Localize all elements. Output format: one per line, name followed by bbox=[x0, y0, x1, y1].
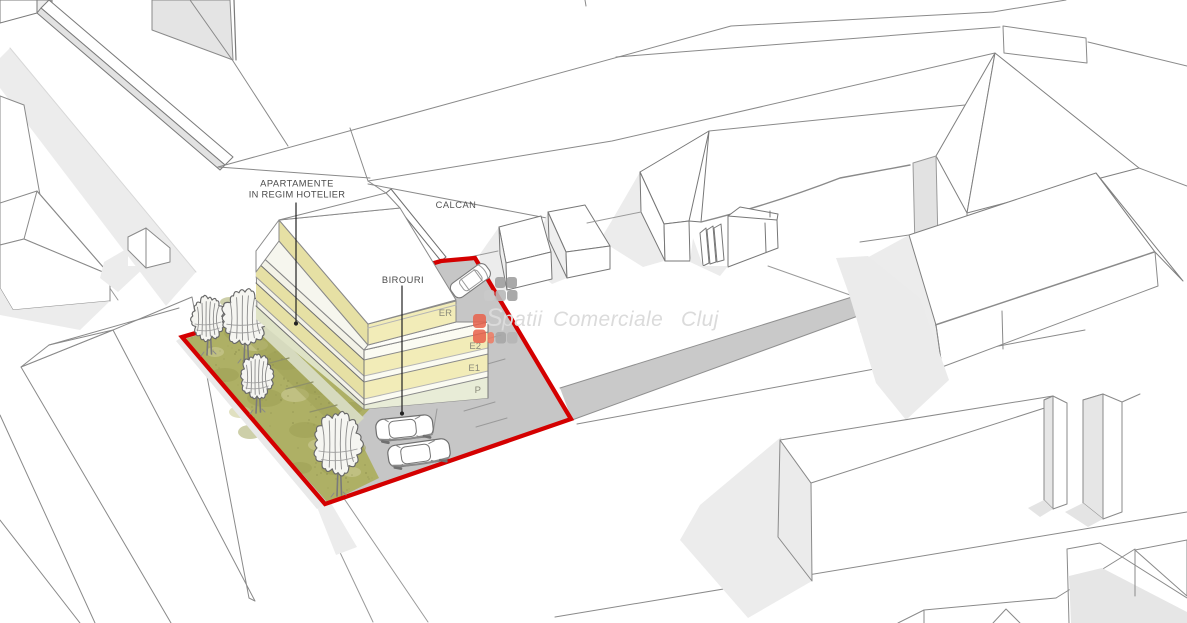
svg-text:Comerciale: Comerciale bbox=[553, 308, 663, 331]
svg-text:P: P bbox=[475, 385, 481, 396]
svg-text:BIROURI: BIROURI bbox=[382, 275, 424, 285]
svg-text:patii: patii bbox=[501, 308, 543, 331]
svg-text:S: S bbox=[486, 304, 503, 332]
svg-text:APARTAMENTE: APARTAMENTE bbox=[260, 179, 334, 189]
svg-text:IN REGIM HOTELIER: IN REGIM HOTELIER bbox=[249, 190, 346, 200]
svg-text:E1: E1 bbox=[468, 363, 480, 374]
svg-text:ER: ER bbox=[439, 308, 452, 319]
svg-text:CALCAN: CALCAN bbox=[436, 200, 477, 210]
svg-text:Cluj: Cluj bbox=[681, 308, 720, 331]
